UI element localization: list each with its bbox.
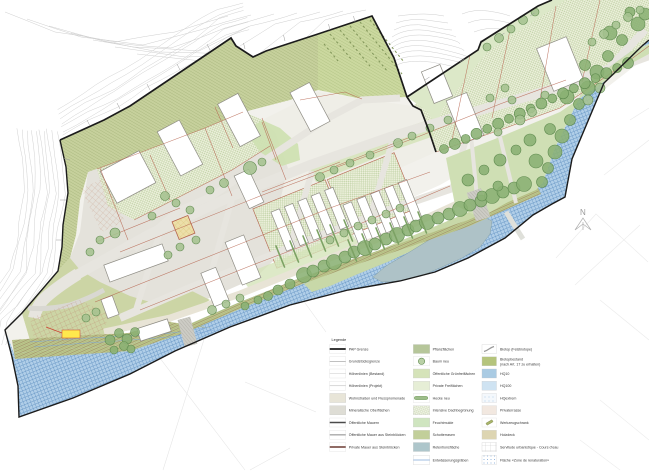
svg-text:Legende: Legende xyxy=(332,338,347,342)
svg-text:HQ10: HQ10 xyxy=(500,372,509,376)
svg-text:Mineralische Oberflächen: Mineralische Oberflächen xyxy=(349,409,390,413)
svg-text:Entwässerungsgräben: Entwässerungsgräben xyxy=(433,458,469,462)
svg-text:Öffentliche Mauern: Öffentliche Mauern xyxy=(349,421,379,425)
svg-text:Wohnstraßen und Flusspromenade: Wohnstraßen und Flusspromenade xyxy=(349,396,405,400)
svg-text:Baum neu: Baum neu xyxy=(433,360,449,364)
svg-text:Holzdeck: Holzdeck xyxy=(500,433,515,437)
svg-text:N: N xyxy=(580,208,586,217)
svg-text:Fläche «Zone de renaturation»: Fläche «Zone de renaturation» xyxy=(500,458,549,462)
svg-text:Pflanzflächen: Pflanzflächen xyxy=(433,347,455,351)
svg-text:Werkzeugschrank: Werkzeugschrank xyxy=(500,421,529,425)
svg-text:Biotopbestand: Biotopbestand xyxy=(500,358,523,362)
svg-text:Grundstücksgrenze: Grundstücksgrenze xyxy=(349,360,380,364)
svg-text:Schotterrasen: Schotterrasen xyxy=(433,433,455,437)
svg-text:HQ100: HQ100 xyxy=(500,384,511,388)
svg-text:(nach Art. 17 zu erhalten): (nach Art. 17 zu erhalten) xyxy=(500,363,540,367)
svg-text:Private Mauer aus Steinblöcken: Private Mauer aus Steinblöcken xyxy=(349,445,400,449)
svg-text:Hecke neu: Hecke neu xyxy=(433,396,450,400)
svg-text:Privaterrasse: Privaterrasse xyxy=(500,409,521,413)
svg-text:Biotop (Felsbiotope): Biotop (Felsbiotope) xyxy=(500,347,532,351)
svg-text:Feuchtmulde: Feuchtmulde xyxy=(433,421,454,425)
svg-text:Öffentliche Grünfreiflächen: Öffentliche Grünfreiflächen xyxy=(433,372,476,376)
svg-text:Private Freiflächen: Private Freiflächen xyxy=(433,384,463,388)
svg-text:Höhenlinien (Bestand): Höhenlinien (Bestand) xyxy=(349,372,385,376)
svg-text:Öffentliche Mauer aus Steinblö: Öffentliche Mauer aus Steinblöcken xyxy=(349,433,406,437)
svg-text:PAP Grenze: PAP Grenze xyxy=(349,347,369,351)
svg-text:Intensive Dachbegrünung: Intensive Dachbegrünung xyxy=(433,409,474,413)
svg-text:HQextrem: HQextrem xyxy=(500,396,516,400)
svg-text:Servitude urbanistique - Cours: Servitude urbanistique - Cours d’eau xyxy=(500,445,558,449)
svg-text:Retentionsfläche: Retentionsfläche xyxy=(433,445,460,449)
svg-text:Höhenlinien (Projekt): Höhenlinien (Projekt) xyxy=(349,384,383,388)
